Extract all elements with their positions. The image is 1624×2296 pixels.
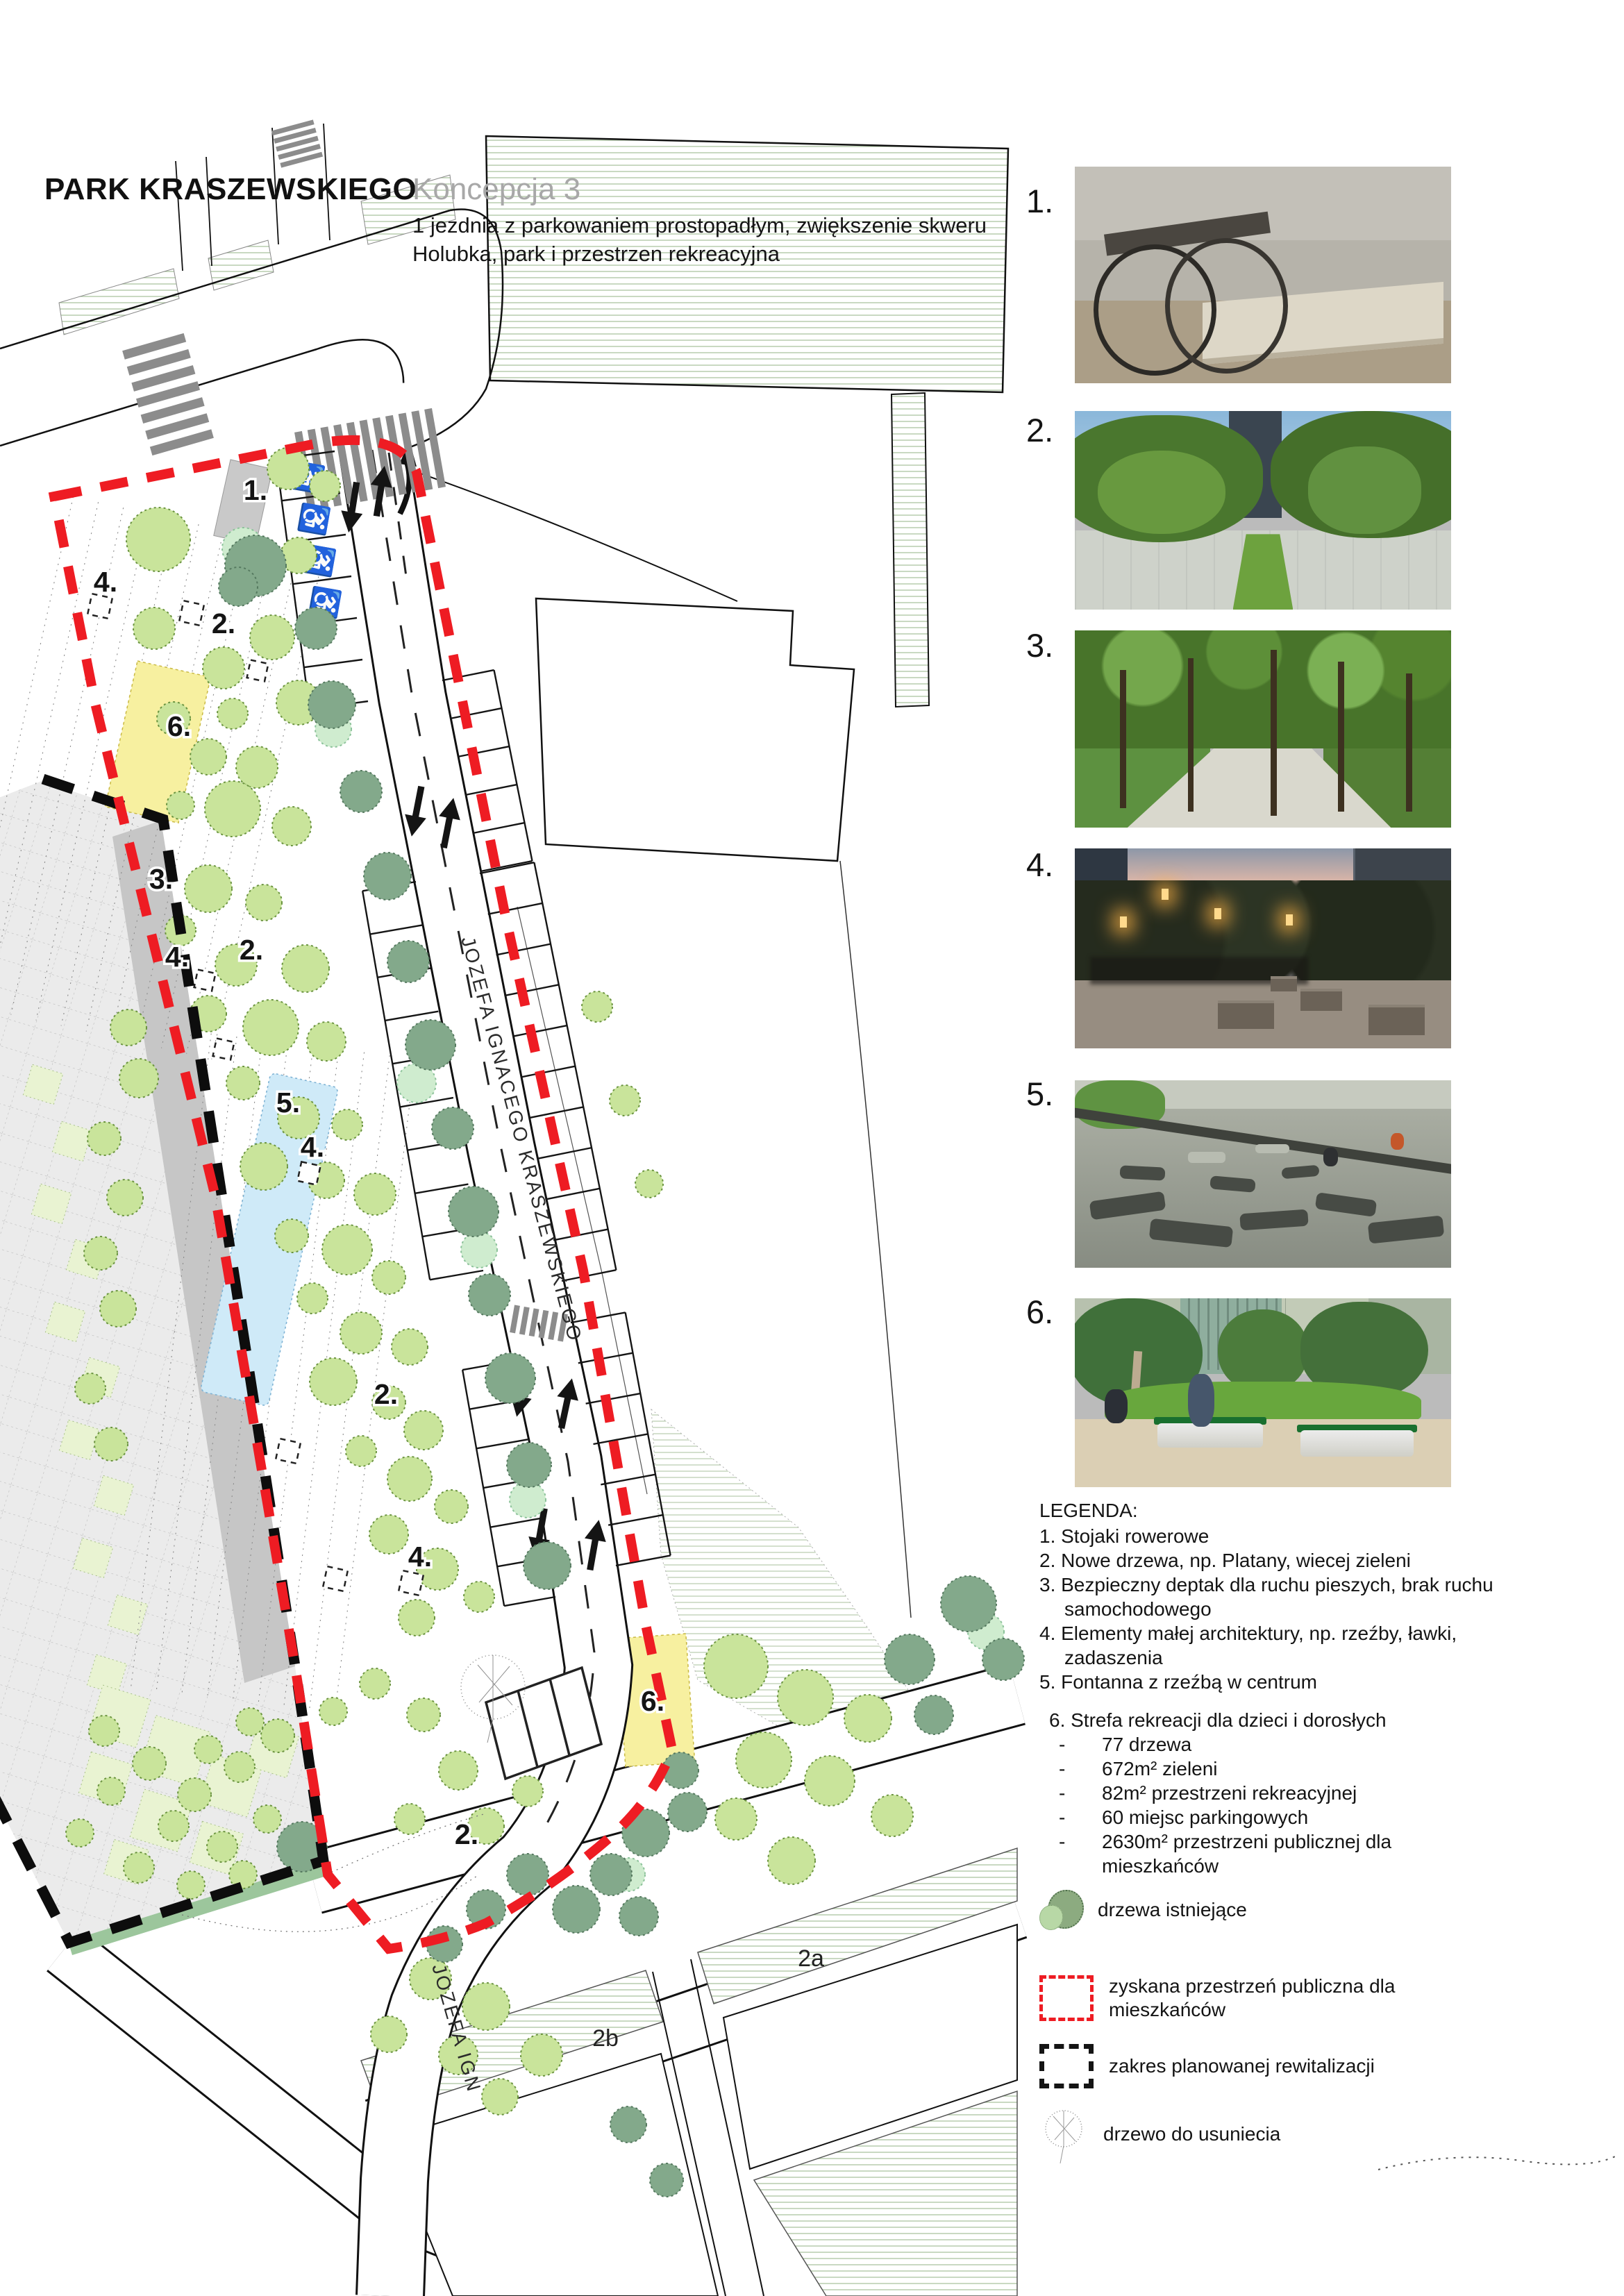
photo-decor (1098, 451, 1225, 534)
building-blocks (417, 136, 1008, 1750)
legend-item-4: 4. Elementy małej architektury, np. rzeź… (1039, 1621, 1537, 1670)
photo-decor (1308, 446, 1421, 534)
map-zone-label: 4. (165, 941, 189, 973)
photo-decor (1338, 662, 1344, 812)
concept-label: Koncepcja 3 (412, 172, 580, 207)
photo-number-1: 1. (1026, 182, 1069, 220)
photo-number-2: 2. (1026, 411, 1069, 449)
legend-bullet: - 672m² zieleni (1049, 1757, 1537, 1781)
legend-symbol-gained-space: zyskana przestrzeń publiczna dla mieszka… (1039, 1975, 1400, 2022)
photo-decor (1271, 976, 1297, 991)
bullet-text: 82m² przestrzeni rekreacyjnej (1102, 1781, 1400, 1805)
map-zone-label: 4. (94, 566, 117, 598)
svg-text:♿: ♿ (296, 501, 333, 538)
legend-bullet: - 82m² przestrzeni rekreacyjnej (1049, 1781, 1537, 1805)
bullet-dash: - (1049, 1757, 1102, 1781)
photo-decor (1323, 1148, 1339, 1166)
map-zone-label: 2. (240, 934, 263, 966)
legend-zone-6: 6. Strefa rekreacji dla dzieci i dorosły… (1049, 1708, 1537, 1878)
symbol-label: zyskana przestrzeń publiczna dla mieszka… (1109, 1975, 1400, 2022)
map-zone-label: 6. (641, 1685, 664, 1717)
symbol-label: zakres planowanej rewitalizacji (1109, 2054, 1375, 2078)
map-zone-label: 2. (455, 1818, 478, 1850)
photo-decor (1188, 1374, 1214, 1427)
legend: LEGENDA: 1. Stojaki rowerowe 2. Nowe drz… (1039, 1498, 1537, 1878)
photo-decor (1157, 1423, 1263, 1448)
existing-tree-icon (1039, 1888, 1082, 1932)
photo-decor (1165, 238, 1288, 374)
photo-decor (1286, 914, 1293, 925)
map-zone-label: 1. (244, 474, 267, 506)
legend-bullet: - 77 drzewa (1049, 1732, 1537, 1757)
photo-number-3: 3. (1026, 626, 1069, 664)
bullet-dash: - (1049, 1829, 1102, 1878)
photo-decor (1406, 673, 1412, 812)
photo-decor (1214, 908, 1221, 919)
legend-bullet: - 60 miejsc parkingowych (1049, 1805, 1537, 1829)
photo-number-4: 4. (1026, 846, 1069, 884)
subtitle-line-2: Holubka, park i przestrzen rekreacyjna (412, 240, 1058, 268)
concept-subtitle: 1 jezdnia z parkowaniem prostopadłym, zw… (412, 211, 1058, 268)
photo-decor (1218, 1000, 1274, 1029)
photo-1-bike-racks (1075, 167, 1451, 383)
symbol-label: drzewa istniejące (1098, 1898, 1247, 1922)
photo-number-6: 6. (1026, 1293, 1069, 1331)
photo-decor (1271, 650, 1277, 816)
map-zone-label: 4. (408, 1541, 432, 1573)
plaza-skwer (0, 781, 326, 1955)
bullet-text: 77 drzewa (1102, 1732, 1400, 1757)
photo-number-5: 5. (1026, 1075, 1069, 1113)
photo-decor (1300, 1430, 1414, 1457)
concept-board: ♿♿♿♿ 1. 4. 2. 6. 3. 4. 2. 5. 4. 2. 4. 6.… (0, 0, 1624, 2296)
photo-decor (1120, 916, 1127, 928)
subtitle-line-1: 1 jezdnia z parkowaniem prostopadłym, zw… (412, 211, 1058, 240)
bullet-dash: - (1049, 1732, 1102, 1757)
bullet-dash: - (1049, 1781, 1102, 1805)
map-zone-label: 5. (276, 1087, 300, 1118)
photo-decor (1162, 889, 1169, 900)
map-zone-label: 2. (374, 1378, 398, 1410)
map-block-label: 2b (592, 2025, 619, 2052)
legend-zone6-title: 6. Strefa rekreacji dla dzieci i dorosły… (1049, 1708, 1537, 1732)
legend-symbol-revitalization: zakres planowanej rewitalizacji (1039, 2044, 1375, 2088)
map-zone-label: 4. (301, 1131, 324, 1163)
photo-decor (1218, 1309, 1308, 1393)
photo-decor (1120, 670, 1126, 808)
map-zone-label: 3. (149, 863, 173, 895)
photo-2-new-trees (1075, 411, 1451, 610)
legend-item-3: 3. Bezpieczny deptak dla ruchu pieszych,… (1039, 1573, 1537, 1621)
photo-6-recreation-zone (1075, 1298, 1451, 1487)
legend-item-5: 5. Fontanna z rzeźbą w centrum (1039, 1670, 1537, 1694)
bullet-text: 2630m² przestrzeni publicznej dla mieszk… (1102, 1829, 1400, 1878)
black-dashed-boundary-icon (1039, 2044, 1094, 2088)
photo-decor (1075, 630, 1451, 748)
photo-decor (1188, 1152, 1225, 1163)
legend-bullet: - 2630m² przestrzeni publicznej dla mies… (1049, 1829, 1537, 1878)
map-zone-label: 2. (212, 607, 235, 639)
legend-symbol-tree-removal: drzewo do usuniecia (1039, 2104, 1280, 2165)
photo-decor (1188, 658, 1194, 812)
photo-decor (1120, 1165, 1166, 1180)
photo-4-small-architecture (1075, 848, 1451, 1048)
map-block-label: 2a (798, 1945, 824, 1972)
bullet-dash: - (1049, 1805, 1102, 1829)
photo-decor (1368, 1005, 1425, 1035)
bullet-text: 672m² zieleni (1102, 1757, 1400, 1781)
legend-item-2: 2. Nowe drzewa, np. Platany, wiecej ziel… (1039, 1548, 1537, 1573)
photo-5-fountain-sculpture (1075, 1080, 1451, 1268)
photo-decor (1300, 989, 1342, 1012)
legend-symbol-existing-trees: drzewa istniejące (1039, 1888, 1247, 1932)
legend-item-1: 1. Stojaki rowerowe (1039, 1524, 1537, 1548)
symbol-label: drzewo do usuniecia (1103, 2122, 1280, 2146)
photo-decor (1105, 1389, 1128, 1423)
tree-to-remove-icon (1039, 2104, 1088, 2165)
page-title: PARK KRASZEWSKIEGO (44, 172, 417, 207)
red-dashed-boundary-icon (1039, 1975, 1094, 2021)
photo-3-pedestrian-promenade (1075, 630, 1451, 828)
map-zone-label: 6. (167, 710, 191, 742)
photo-decor (1255, 1144, 1289, 1154)
legend-title: LEGENDA: (1039, 1498, 1537, 1523)
photo-decor (1075, 1109, 1451, 1268)
bullet-text: 60 miejsc parkingowych (1102, 1805, 1400, 1829)
photo-decor (1391, 1133, 1404, 1150)
